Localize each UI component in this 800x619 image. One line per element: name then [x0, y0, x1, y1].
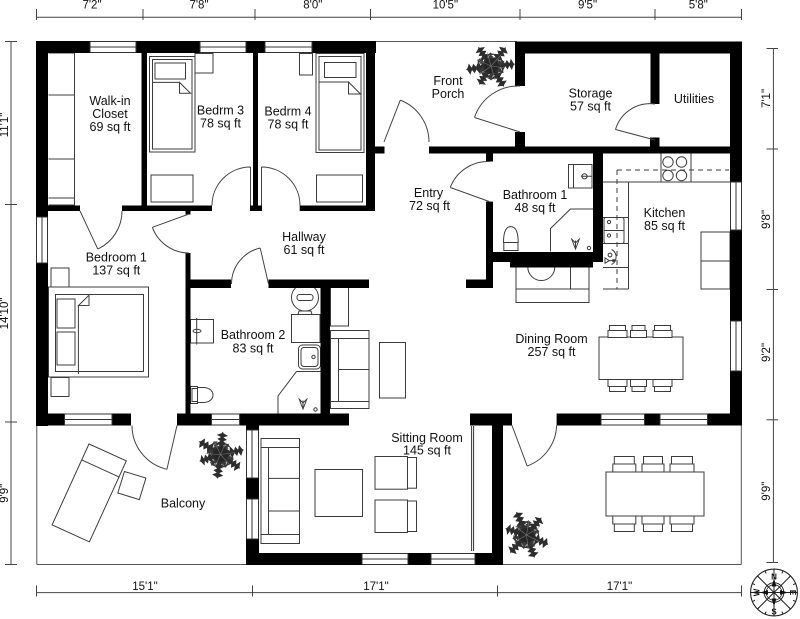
svg-text:Walk-in: Walk-in [89, 94, 130, 108]
svg-text:78 sq ft: 78 sq ft [268, 118, 310, 132]
svg-text:Balcony: Balcony [161, 497, 206, 511]
svg-text:7'8": 7'8" [189, 0, 208, 12]
svg-text:S: S [771, 608, 777, 617]
svg-text:69 sq ft: 69 sq ft [90, 120, 132, 134]
svg-text:E: E [788, 590, 797, 596]
svg-text:10'5": 10'5" [433, 0, 458, 12]
svg-text:7'1": 7'1" [761, 89, 773, 108]
svg-text:78 sq ft: 78 sq ft [200, 117, 242, 131]
svg-text:Front: Front [433, 74, 463, 88]
svg-text:Hallway: Hallway [282, 230, 327, 244]
svg-text:9'9": 9'9" [0, 484, 11, 503]
svg-text:Entry: Entry [414, 186, 444, 200]
svg-text:Dining Room: Dining Room [515, 332, 587, 346]
svg-text:9'5": 9'5" [578, 0, 597, 12]
svg-text:Porch: Porch [432, 87, 465, 101]
svg-text:11'1": 11'1" [0, 113, 11, 138]
svg-text:14'10": 14'10" [0, 298, 11, 330]
svg-text:72 sq ft: 72 sq ft [409, 199, 451, 213]
svg-text:137 sq ft: 137 sq ft [92, 264, 140, 278]
svg-text:Storage: Storage [569, 87, 613, 101]
svg-text:Bedroom 1: Bedroom 1 [86, 251, 147, 265]
svg-text:61 sq ft: 61 sq ft [284, 243, 326, 257]
svg-text:257 sq ft: 257 sq ft [528, 345, 576, 359]
svg-text:9'8": 9'8" [761, 210, 773, 229]
svg-text:15'1": 15'1" [132, 581, 157, 593]
svg-text:Bathroom 1: Bathroom 1 [503, 188, 568, 202]
svg-text:85 sq ft: 85 sq ft [644, 219, 686, 233]
svg-text:Bedrm 4: Bedrm 4 [264, 105, 311, 119]
svg-text:57 sq ft: 57 sq ft [570, 100, 612, 114]
svg-text:9'2": 9'2" [761, 343, 773, 362]
svg-text:8'0": 8'0" [303, 0, 322, 12]
svg-text:145 sq ft: 145 sq ft [403, 444, 451, 458]
svg-text:N: N [771, 573, 777, 582]
svg-text:Bedrm 3: Bedrm 3 [197, 104, 244, 118]
svg-text:Utilities: Utilities [674, 92, 714, 106]
svg-text:5'8": 5'8" [689, 0, 708, 12]
svg-text:48 sq ft: 48 sq ft [515, 201, 557, 215]
svg-text:9'9": 9'9" [761, 482, 773, 501]
svg-text:83 sq ft: 83 sq ft [233, 342, 275, 356]
svg-text:Bathroom 2: Bathroom 2 [221, 328, 286, 342]
svg-text:17'1": 17'1" [363, 581, 388, 593]
svg-text:Kitchen: Kitchen [644, 206, 686, 220]
svg-text:W: W [752, 588, 761, 596]
svg-text:7'2": 7'2" [82, 0, 101, 12]
svg-text:Closet: Closet [92, 107, 128, 121]
svg-text:17'1": 17'1" [607, 581, 632, 593]
